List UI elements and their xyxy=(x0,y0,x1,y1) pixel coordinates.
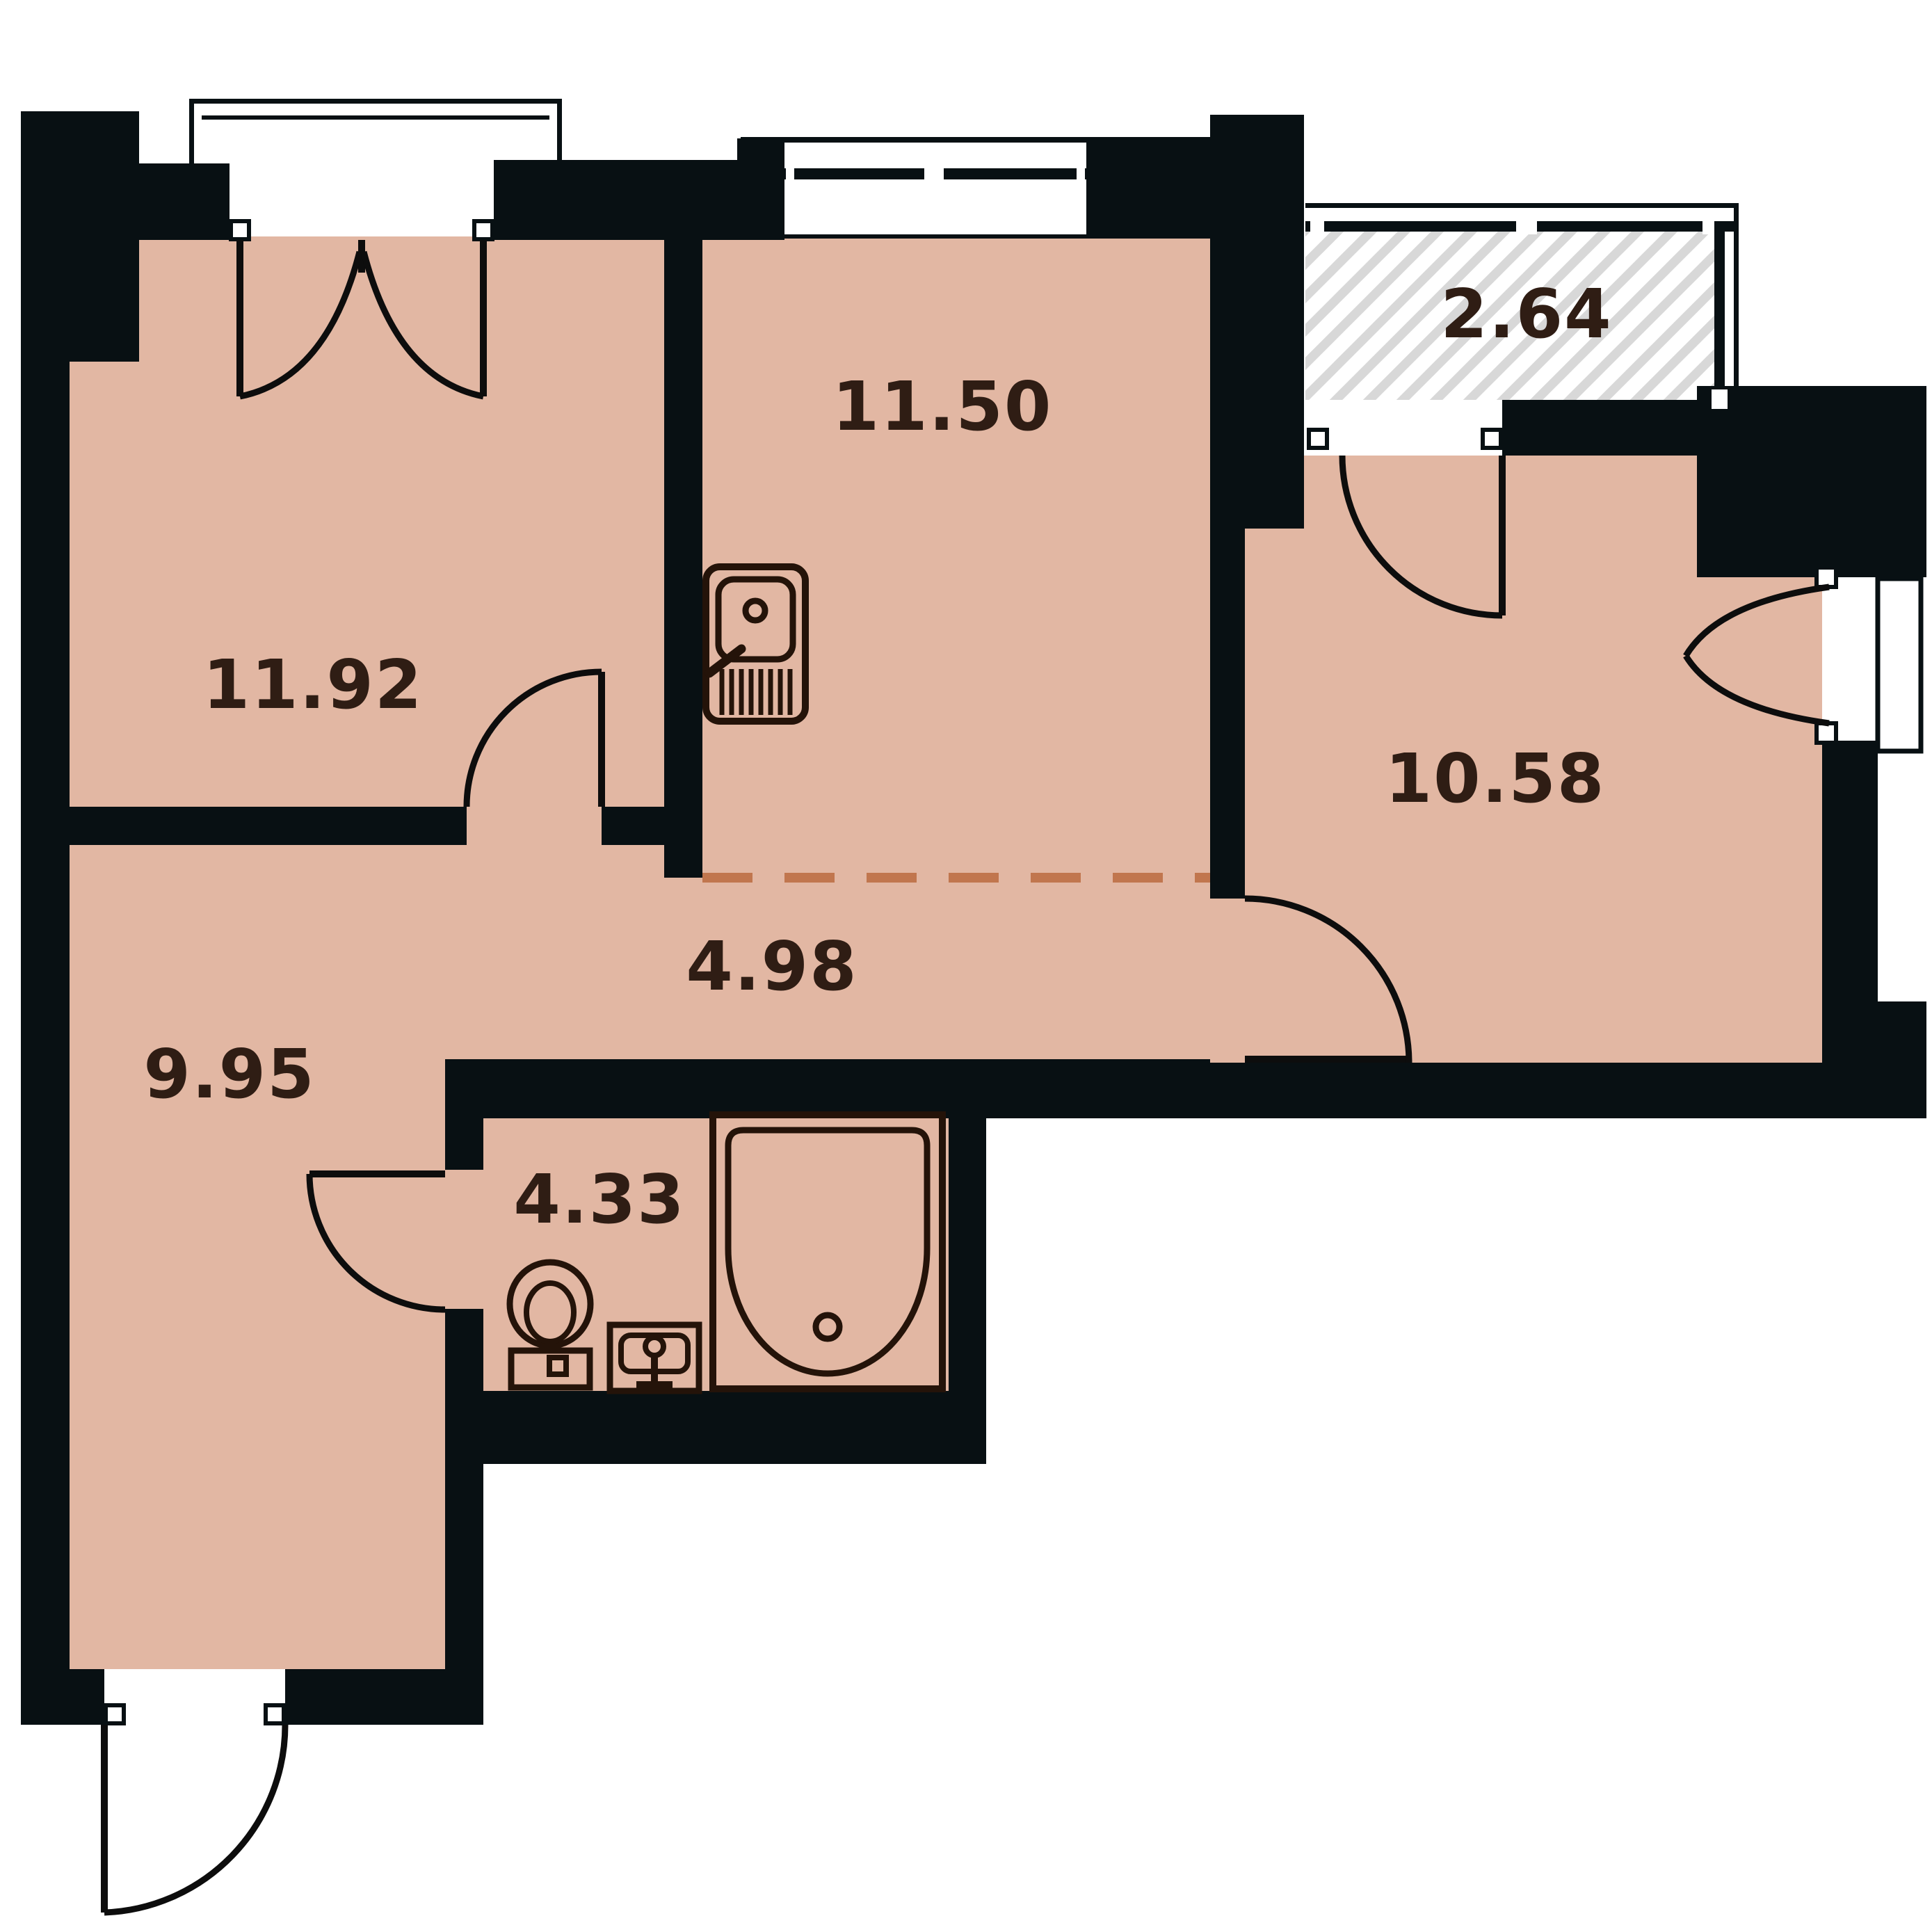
balcony-mullion-gap xyxy=(1310,218,1324,234)
area-label-room-right: 10.58 xyxy=(1385,739,1606,818)
wall-entrance-left xyxy=(21,1669,104,1725)
wall-bottom-right-corner xyxy=(1822,1001,1926,1118)
wall-kitchen-window-inner-face xyxy=(741,234,1210,239)
kitchen-window-mullion-gap xyxy=(924,166,944,182)
balcony-glazing-outer-right xyxy=(1734,203,1739,456)
wall-kitchen-window-left xyxy=(737,138,784,239)
door-jamb xyxy=(1817,567,1836,587)
balcony-frame-line xyxy=(189,99,194,240)
wall-under-balcony xyxy=(1502,400,1697,456)
wall-room-top-left-bottom xyxy=(70,807,467,845)
door-jamb xyxy=(106,1705,124,1723)
wall-bathroom-left-upper xyxy=(445,1118,483,1170)
area-label-hallway: 4.98 xyxy=(686,927,858,1006)
entrance-door xyxy=(104,1705,285,1913)
wall-bathroom-left-lower xyxy=(445,1309,483,1391)
wall-bathroom-right xyxy=(949,1118,986,1391)
wall-bathroom-bottom xyxy=(445,1391,986,1464)
balcony-glazing-bar-right xyxy=(1714,221,1725,451)
wall-hallway-bottom xyxy=(445,1059,1210,1118)
area-label-room-bottom-left: 9.95 xyxy=(143,1035,315,1113)
washbasin-base xyxy=(636,1381,673,1391)
area-label-kitchen: 11.50 xyxy=(832,367,1053,446)
balcony-mullion-gap xyxy=(1516,218,1537,234)
door-jamb xyxy=(231,221,249,239)
wall-top-right-corner xyxy=(1697,386,1926,577)
wall-top-stub-left-of-french-door xyxy=(139,163,230,240)
kitchen-window-mullion-gap xyxy=(786,166,794,182)
balcony-frame-line xyxy=(202,115,549,120)
balcony-mullion-gap xyxy=(1712,389,1728,409)
wall-entrance-right xyxy=(285,1669,483,1725)
area-label-room-top-left: 11.92 xyxy=(203,645,424,724)
door-jamb xyxy=(474,221,492,239)
kitchen-window-mullion-gap xyxy=(1077,166,1085,182)
wall-divider-room-kitchen xyxy=(664,240,702,878)
door-jamb xyxy=(1309,430,1327,448)
floor-bathroom-door-threshold xyxy=(445,1170,483,1309)
door-jamb xyxy=(1483,430,1501,448)
wall-right-exterior xyxy=(1822,741,1878,1001)
area-label-bathroom: 4.33 xyxy=(513,1160,685,1239)
area-label-balcony: 2.64 xyxy=(1440,275,1612,353)
floor-room-top-left xyxy=(70,236,702,848)
kitchen-window xyxy=(784,166,1086,182)
floor-hallway xyxy=(70,807,1210,1063)
door-swing-arc xyxy=(104,1725,285,1913)
door-jamb xyxy=(1817,723,1836,743)
balcony-glazing-outer xyxy=(1305,203,1739,208)
floor-plan-drawing: 11.92 11.50 2.64 10.58 4.98 9.95 4.33 xyxy=(0,0,1932,1932)
wall-top-left-corner xyxy=(21,111,139,362)
wall-room-right-bottom xyxy=(1210,1063,1878,1118)
balcony-frame-line xyxy=(557,99,562,240)
wall-kitchen-right-block xyxy=(1210,115,1304,529)
wall-kitchen-room-right-divider xyxy=(1210,529,1245,899)
balcony-frame-line xyxy=(189,99,562,104)
floor-plan-page: 11.92 11.50 2.64 10.58 4.98 9.95 4.33 xyxy=(0,0,1932,1932)
wall-kitchen-window-outer-face xyxy=(741,137,1210,143)
door-opening xyxy=(1822,577,1878,741)
wall-room-top-left-bottom-stub xyxy=(602,807,702,845)
exterior-railing xyxy=(1878,579,1921,751)
wall-kitchen-window-right xyxy=(1086,138,1210,239)
door-opening xyxy=(1304,400,1502,456)
door-jamb xyxy=(266,1705,284,1723)
